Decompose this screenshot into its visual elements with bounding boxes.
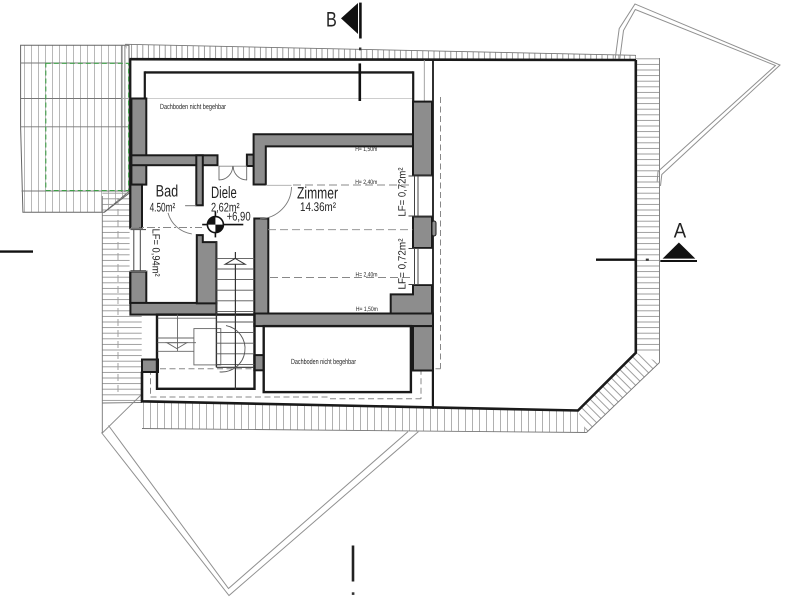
svg-text:LF= 0,94m²: LF= 0,94m² [150, 229, 162, 277]
svg-text:Diele: Diele [211, 184, 237, 202]
svg-text:4.50m²: 4.50m² [150, 201, 176, 215]
svg-text:Bad: Bad [156, 183, 179, 201]
svg-text:H= 1,50m: H= 1,50m [355, 146, 377, 153]
svg-text:A: A [674, 220, 686, 243]
svg-text:H= 2,40m: H= 2,40m [356, 271, 378, 278]
svg-text:H= 1,50m: H= 1,50m [356, 306, 378, 313]
svg-text:+6,90: +6,90 [227, 210, 251, 224]
svg-text:LF= 0,72m²: LF= 0,72m² [396, 167, 408, 216]
svg-text:14.36m²: 14.36m² [300, 200, 336, 214]
svg-text:H= 2,40m: H= 2,40m [355, 179, 377, 186]
svg-text:LF= 0,72m²: LF= 0,72m² [396, 238, 408, 289]
svg-text:B: B [326, 8, 337, 31]
svg-text:Dachboden nicht begehbar: Dachboden nicht begehbar [160, 102, 226, 111]
svg-text:Dachboden nicht begehbar: Dachboden nicht begehbar [291, 357, 356, 366]
